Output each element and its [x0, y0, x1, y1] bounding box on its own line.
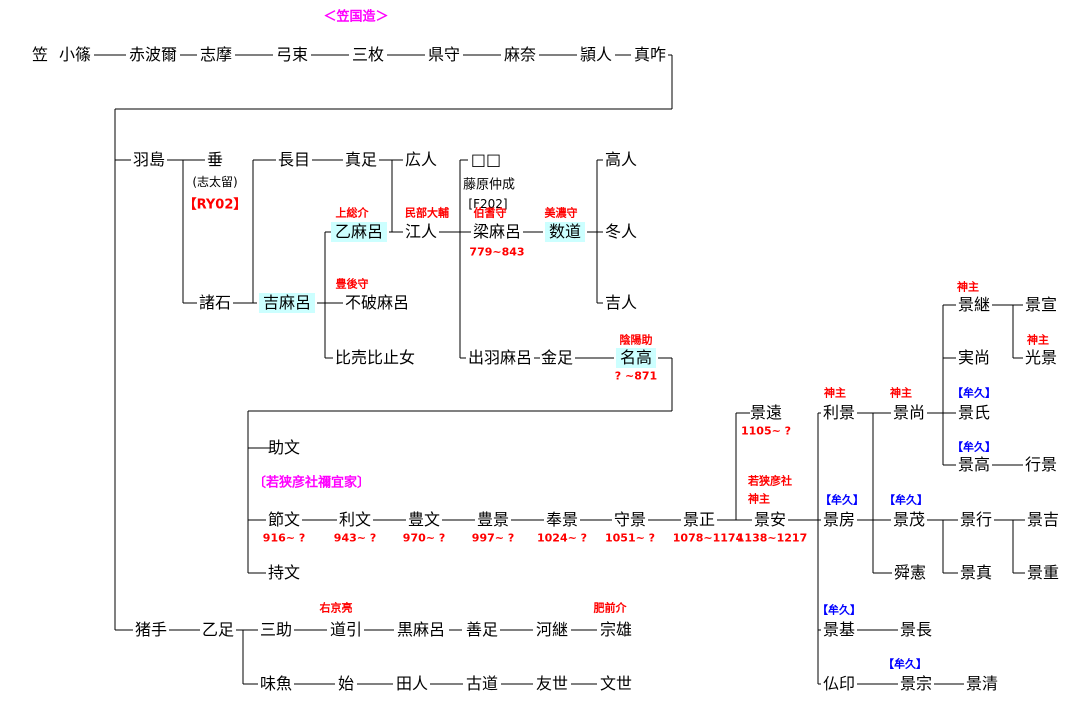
person-node: 笠 [32, 47, 48, 63]
person-node: 景尚 [893, 405, 925, 421]
person-annotation: 1105~ ? [741, 426, 791, 437]
person-annotation: ? ~871 [615, 371, 657, 382]
person-annotation: 【牟久】 [820, 495, 864, 506]
person-annotation: 〔若狭彦社禰宜家〕 [253, 477, 370, 490]
person-node: 赤波爾 [129, 47, 177, 63]
person-node: 持文 [268, 565, 300, 581]
person-annotation: 右京亮 [320, 603, 353, 614]
person-annotation: 神主 [824, 388, 846, 399]
person-annotation: 肥前介 [594, 603, 627, 614]
person-annotation: 997~ ? [472, 533, 514, 544]
person-node: 古道 [466, 676, 498, 692]
person-node: 諸石 [199, 295, 231, 311]
person-node: 景宗 [900, 676, 932, 692]
person-annotation: 【牟久】 [952, 442, 996, 453]
person-node: 比売比止女 [335, 350, 415, 366]
person-node: 景正 [683, 512, 715, 528]
person-node: 高人 [605, 152, 637, 168]
person-node: 助文 [268, 440, 300, 456]
person-annotation: 943~ ? [334, 533, 376, 544]
person-node: 梁麻呂 [473, 224, 521, 240]
person-node: 麻奈 [504, 47, 536, 63]
person-node: 県守 [428, 47, 460, 63]
person-node-highlighted: 乙麻呂 [331, 222, 387, 242]
person-node: 志摩 [200, 47, 232, 63]
person-node: 景茂 [893, 512, 925, 528]
genealogy-chart: ＜笠国造＞ 笠小篠赤波爾志摩弓束三枚県守麻奈頴人真咋羽島垂長目真足広人□□高人乙… [0, 0, 1072, 719]
chart-title: ＜笠国造＞ [323, 6, 388, 25]
person-node: 豊景 [477, 512, 509, 528]
person-node: 弓束 [276, 47, 308, 63]
person-annotation: 若狭彦社 [748, 476, 792, 487]
person-node: 実尚 [958, 350, 990, 366]
person-annotation: 上総介 [336, 208, 369, 219]
person-node: 景長 [900, 622, 932, 638]
person-annotation: 1138~1217 [737, 533, 807, 544]
person-node-highlighted: 吉麻呂 [259, 293, 315, 313]
person-annotation: 伯耆守 [474, 208, 507, 219]
person-annotation: 779~843 [469, 247, 524, 258]
person-node-highlighted: 名高 [616, 348, 656, 368]
person-annotation: 神主 [957, 282, 979, 293]
person-node: 真咋 [634, 47, 666, 63]
person-node: 景継 [958, 297, 990, 313]
person-annotation: 民部大輔 [405, 208, 449, 219]
person-node: 金足 [541, 350, 573, 366]
person-node: 景行 [960, 512, 992, 528]
person-node: 江人 [405, 224, 437, 240]
person-node: 田人 [396, 676, 428, 692]
person-annotation: 【牟久】 [883, 659, 927, 670]
person-node-highlighted: 数道 [545, 222, 585, 242]
person-annotation: 【牟久】 [952, 388, 996, 399]
person-node: □□ [471, 152, 501, 168]
person-annotation: 神主 [890, 388, 912, 399]
person-node: 仏印 [823, 676, 855, 692]
person-node: 景真 [960, 565, 992, 581]
person-node: 景氏 [958, 405, 990, 421]
person-node: 乙足 [202, 622, 234, 638]
person-node: 善足 [466, 622, 498, 638]
person-node: 河継 [536, 622, 568, 638]
person-node: 景房 [823, 512, 855, 528]
person-node: 不破麻呂 [345, 295, 409, 311]
person-node: 守景 [614, 512, 646, 528]
person-node: 黒麻呂 [397, 622, 445, 638]
person-node: 出羽麻呂 [468, 350, 532, 366]
person-node: 三枚 [352, 47, 384, 63]
person-node: 景吉 [1027, 512, 1059, 528]
person-node: 小篠 [59, 47, 91, 63]
person-node: 光景 [1025, 350, 1057, 366]
person-node: 景宣 [1025, 297, 1057, 313]
person-node: 広人 [405, 152, 437, 168]
person-annotation: 美濃守 [545, 208, 578, 219]
person-annotation: 970~ ? [403, 533, 445, 544]
person-annotation: 豊後守 [336, 279, 369, 290]
person-annotation: 神主 [748, 494, 770, 505]
person-node: 羽島 [133, 152, 165, 168]
person-annotation: 【牟久】 [817, 605, 861, 616]
person-node: 三助 [260, 622, 292, 638]
person-node: 吉人 [605, 295, 637, 311]
person-node: 景安 [754, 512, 786, 528]
person-annotation: 陰陽助 [620, 335, 653, 346]
person-node: 文世 [600, 676, 632, 692]
person-node: 道引 [330, 622, 362, 638]
person-node: 始 [338, 676, 354, 692]
person-annotation: 【牟久】 [884, 495, 928, 506]
person-node: 頴人 [580, 47, 612, 63]
connector-lines [0, 0, 1072, 719]
person-node: 景遠 [750, 405, 782, 421]
person-node: 猪手 [135, 622, 167, 638]
person-annotation: (志太留) [192, 176, 237, 188]
person-annotation: 神主 [1027, 335, 1049, 346]
person-annotation: 1051~ ? [605, 533, 655, 544]
person-node: 舜憲 [894, 565, 926, 581]
person-annotation: 藤原仲成 [463, 179, 515, 192]
person-node: 景重 [1027, 565, 1059, 581]
person-node: 景基 [823, 622, 855, 638]
person-node: 節文 [268, 512, 300, 528]
person-annotation: 【RY02】 [184, 199, 247, 212]
person-node: 豊文 [408, 512, 440, 528]
person-annotation: 1024~ ? [537, 533, 587, 544]
person-annotation: 1078~1174 [673, 533, 743, 544]
person-node: 真足 [345, 152, 377, 168]
person-node: 景高 [958, 457, 990, 473]
person-node: 友世 [536, 676, 568, 692]
person-node: 垂 [207, 152, 223, 168]
person-node: 利景 [823, 405, 855, 421]
person-node: 冬人 [605, 224, 637, 240]
person-node: 利文 [339, 512, 371, 528]
person-node: 奉景 [546, 512, 578, 528]
person-node: 景清 [966, 676, 998, 692]
person-node: 宗雄 [600, 622, 632, 638]
person-node: 味魚 [260, 676, 292, 692]
person-annotation: 916~ ? [263, 533, 305, 544]
person-node: 長目 [278, 152, 310, 168]
person-node: 行景 [1025, 457, 1057, 473]
